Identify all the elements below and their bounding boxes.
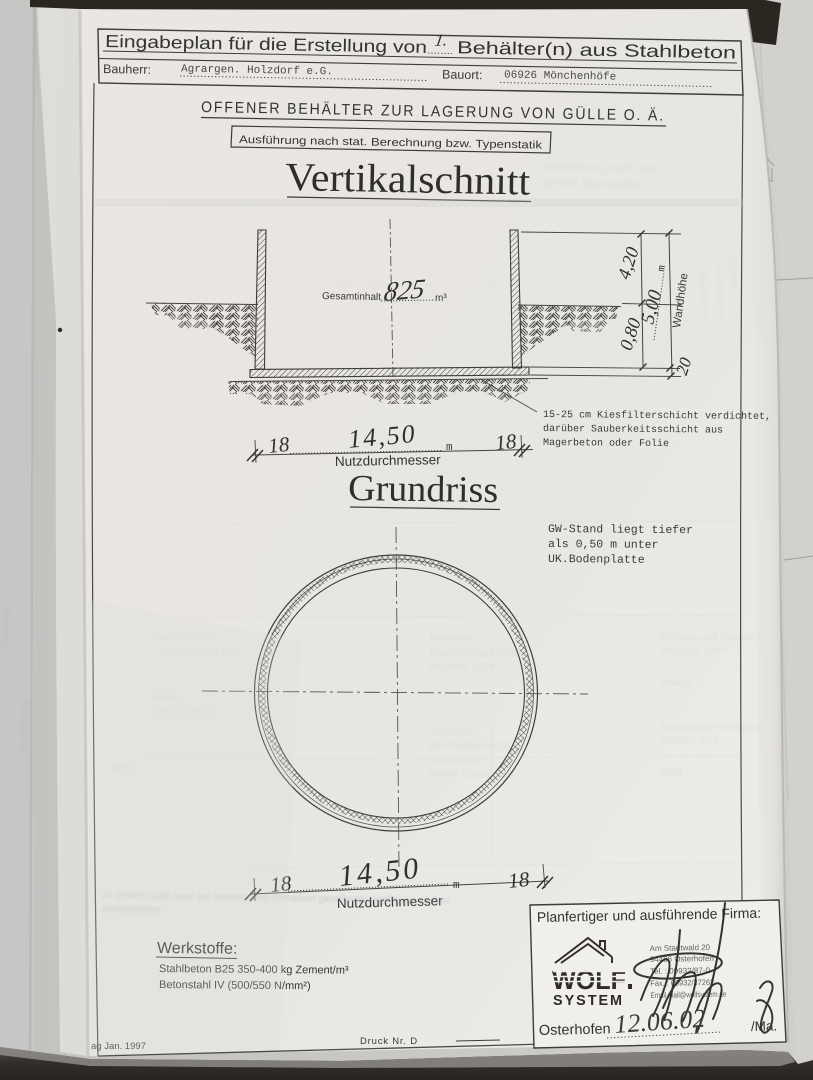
svg-text:Osterhofen: Osterhofen xyxy=(539,1021,611,1039)
svg-text:SYSTEM: SYSTEM xyxy=(553,993,624,1009)
svg-text:Überwachung nach DIN: Überwachung nach DIN xyxy=(538,161,655,175)
svg-text:15-25 cm Kiesfilterschicht ver: 15-25 cm Kiesfilterschicht verdichtet, xyxy=(543,409,771,423)
svg-text:m: m xyxy=(453,880,460,892)
svg-text:m: m xyxy=(446,442,453,454)
svg-text:18: 18 xyxy=(507,867,531,893)
svg-text:Magerbeton oder Folie: Magerbeton oder Folie xyxy=(543,437,669,450)
svg-text:UK.Bodenplatte: UK.Bodenplatte xyxy=(548,553,645,567)
svg-text:Technischer Vorstand: Technischer Vorstand xyxy=(660,721,761,733)
svg-text:Bauort:: Bauort: xyxy=(442,68,483,83)
svg-text:/Ma.: /Ma. xyxy=(751,1018,778,1034)
svg-text:geprüft: geprüft xyxy=(727,258,739,290)
svg-text:18: 18 xyxy=(494,429,518,455)
svg-text:Planfert. 1604: Planfert. 1604 xyxy=(430,661,496,673)
svg-text:Druck Nr. D: Druck Nr. D xyxy=(360,1036,418,1047)
svg-text:Ausfertigung: Ausfertigung xyxy=(18,699,30,750)
svg-text:Prüfung und Auswahl: Prüfung und Auswahl xyxy=(660,631,759,643)
svg-text:Osterhofen: Osterhofen xyxy=(430,754,482,766)
svg-text:94486 Osterhofen: 94486 Osterhofen xyxy=(430,768,514,780)
svg-text:Tafel: Tafel xyxy=(660,766,682,778)
svg-text:gemäß Bauregelliste: gemäß Bauregelliste xyxy=(544,177,645,191)
svg-text:GW-Stand liegt tiefer: GW-Stand liegt tiefer xyxy=(548,523,693,537)
svg-text:Grundriss: Grundriss xyxy=(348,468,499,511)
svg-text:DataCabling GmbH: DataCabling GmbH xyxy=(430,647,521,659)
svg-text:maßstab 1694: maßstab 1694 xyxy=(660,645,727,657)
svg-text:Vertikalschnitt: Vertikalschnitt xyxy=(285,154,531,204)
svg-text:18: 18 xyxy=(267,432,291,458)
svg-text:Bauherr:: Bauherr: xyxy=(103,62,151,77)
svg-text:Am Stadtwald 20: Am Stadtwald 20 xyxy=(430,740,510,752)
svg-text:14,50: 14,50 xyxy=(347,419,418,454)
svg-text:Landkreis W: Landkreis W xyxy=(713,262,726,318)
svg-text:als 0,50 m unter: als 0,50 m unter xyxy=(548,538,659,552)
svg-text:Hausanschluß und: Hausanschluß und xyxy=(352,294,448,308)
svg-text:06926 Mönchenhöfe: 06926 Mönchenhöfe xyxy=(504,70,616,84)
svg-text:Am Stadtwald 20: Am Stadtwald 20 xyxy=(650,943,711,953)
svg-text:WOLF: WOLF xyxy=(552,965,626,995)
svg-text:Nutzdurchmesser: Nutzdurchmesser xyxy=(335,452,442,469)
svg-text:Kenntnis: Kenntnis xyxy=(430,632,471,644)
svg-text:darüber Sauberkeitsschicht aus: darüber Sauberkeitsschicht aus xyxy=(543,423,723,437)
svg-text:90932 / 37-0: 90932 / 37-0 xyxy=(660,735,719,747)
svg-text:Anlage: Anlage xyxy=(660,677,693,689)
svg-text:Auskunft: Auskunft xyxy=(430,726,471,738)
svg-text:Beglaubigt: Beglaubigt xyxy=(0,605,11,648)
svg-text:Bauamt 94: Bauamt 94 xyxy=(697,270,710,319)
